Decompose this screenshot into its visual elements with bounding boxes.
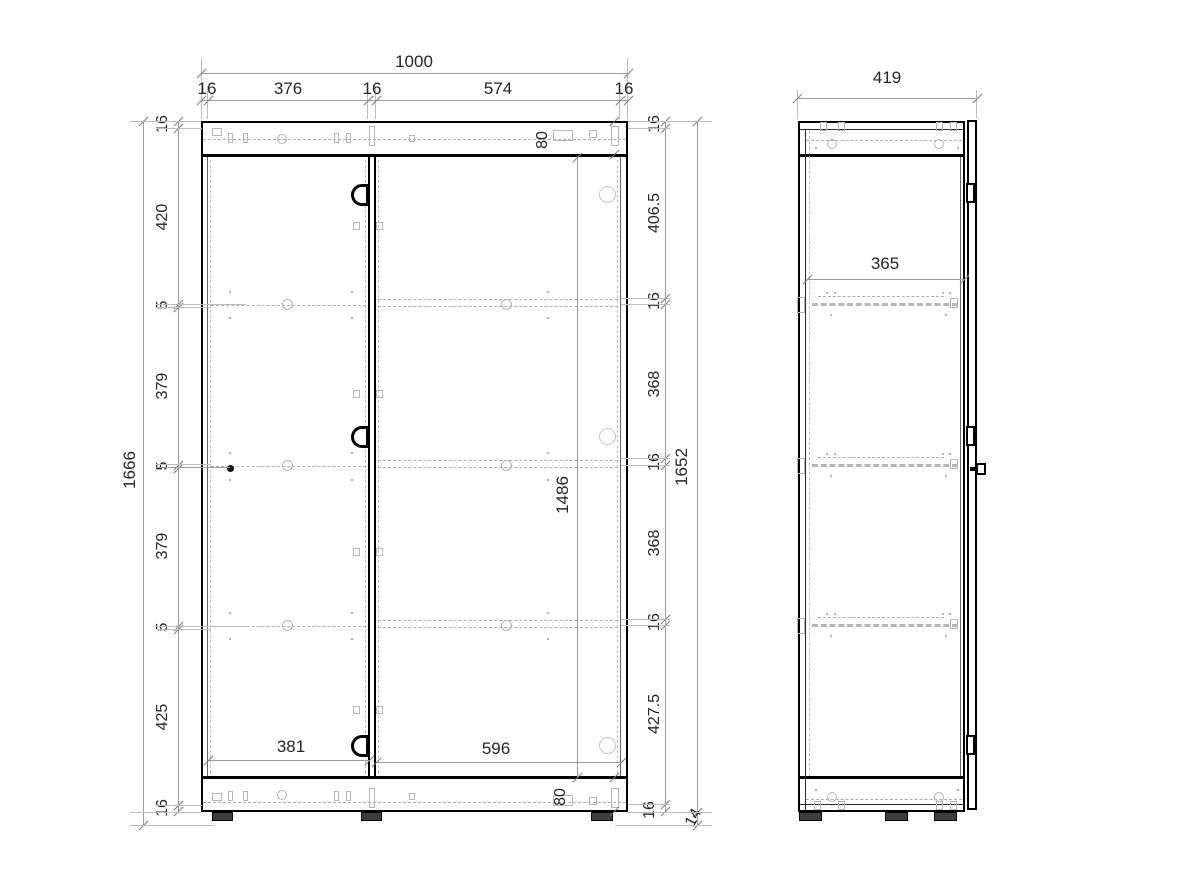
shelf-hidden-line [818, 457, 944, 458]
front-center-divider-left [368, 157, 370, 776]
fitting-symbol [346, 133, 351, 143]
foot-block [799, 812, 822, 821]
dim-front-body-height: 1652 [674, 437, 690, 497]
extension-line [621, 298, 670, 299]
fitting-symbol [376, 222, 383, 230]
dim-right-chain-7: 427.5 [647, 684, 663, 744]
pin-dot [229, 479, 231, 481]
shelf-hidden-line [818, 296, 944, 297]
extension-line [156, 128, 202, 129]
pin-dot [229, 612, 231, 614]
hinge-symbol [351, 735, 369, 757]
door-handle [976, 463, 986, 475]
pin-dot [834, 613, 836, 615]
pin-dot [834, 453, 836, 455]
dimension-line [208, 760, 369, 761]
shelf-section-line [812, 303, 958, 306]
pin-dot [547, 291, 549, 293]
dim-left-chain-1: 420 [155, 195, 171, 239]
fitting-symbol [611, 788, 619, 808]
pin-dot [830, 635, 832, 637]
extension-line [976, 90, 977, 118]
pin-dot [949, 453, 951, 455]
back-clip-symbol [797, 458, 805, 474]
dim-front-seg-2: 16 [352, 81, 392, 97]
cam-symbol [934, 139, 944, 149]
extension-line [628, 121, 712, 122]
fitting-symbol [353, 222, 360, 230]
pin-dot [815, 789, 817, 791]
dim-left-door-width: 381 [261, 739, 321, 755]
hinge-symbol [351, 426, 369, 448]
dim-left-chain-8: 16 [155, 786, 171, 830]
pin-dot [826, 292, 828, 294]
pin-dot [957, 147, 959, 149]
cam-symbol [827, 792, 837, 802]
side-top-rail-bottom [800, 154, 963, 157]
dim-front-seg-4: 16 [604, 81, 644, 97]
cam-symbol [277, 790, 287, 800]
dim-right-chain-0: 16 [647, 102, 663, 146]
dim-left-chain-3: 379 [155, 364, 171, 408]
pin-dot [830, 314, 832, 316]
dim-right-chain-3: 368 [647, 362, 663, 406]
hinge-block [966, 426, 975, 446]
fitting-symbol [376, 390, 383, 398]
pin-dot [949, 292, 951, 294]
dimension-line [376, 762, 621, 763]
dim-left-chain-4: 5 [155, 444, 171, 488]
hinge-block [966, 183, 975, 203]
dim-front-seg-1: 376 [268, 81, 308, 97]
extension-line [628, 812, 712, 813]
side-back-panel-line [805, 130, 806, 810]
shelf-hidden-line [378, 620, 618, 621]
pin-dot [957, 789, 959, 791]
dimension-line [201, 73, 628, 74]
fitting-symbol [838, 801, 845, 810]
pin-dot [351, 479, 353, 481]
extension-line [621, 458, 670, 459]
extension-line [621, 304, 670, 305]
hinge-block [966, 735, 975, 755]
extension-line [130, 121, 201, 122]
shelf-hidden-line [818, 617, 944, 618]
pin-dot [942, 292, 944, 294]
shelf-hidden-line [378, 627, 618, 628]
dim-front-plinth-height: 14 [678, 798, 709, 837]
pin-dot [830, 475, 832, 477]
extension-line [615, 825, 712, 826]
pin-dot [547, 452, 549, 454]
extension-line [156, 805, 202, 806]
dim-left-chain-0: 16 [155, 102, 171, 146]
pin-dot [942, 613, 944, 615]
fitting-symbol [950, 801, 957, 810]
pin-dot [351, 317, 353, 319]
fitting-symbol [212, 793, 222, 801]
shelf-cam-symbol [501, 460, 512, 471]
fitting-symbol [376, 548, 383, 556]
pin-dot [229, 291, 231, 293]
fitting-symbol [346, 791, 351, 801]
pin-dot [229, 317, 231, 319]
cam-symbol [277, 134, 287, 144]
pin-dot [945, 314, 947, 316]
extension-line [130, 812, 201, 813]
pin-dot [229, 638, 231, 640]
shelf-edge-symbol [950, 459, 958, 469]
dim-front-total-width: 1000 [381, 54, 447, 70]
front-right-door-edge [620, 157, 621, 776]
fitting-symbol [409, 135, 415, 142]
shelf-cam-symbol [282, 299, 293, 310]
drawing-canvas: 1000 16 376 16 574 16 16 420 5 379 5 379… [0, 0, 1191, 893]
fitting-symbol [353, 548, 360, 556]
cam-symbol [827, 139, 837, 149]
shelf-edge-symbol [950, 619, 958, 629]
pin-dot [351, 612, 353, 614]
dim-right-door-width: 596 [466, 741, 526, 757]
pin-dot [945, 635, 947, 637]
extension-line [156, 464, 211, 465]
extension-line [156, 307, 211, 308]
fitting-symbol [369, 126, 375, 146]
side-hidden-edge [809, 131, 810, 776]
shelf-section-line [812, 464, 958, 467]
pin-dot [949, 613, 951, 615]
hinge-symbol [351, 184, 369, 206]
fitting-symbol [243, 791, 248, 801]
fitting-symbol [243, 133, 248, 143]
dim-right-door-height: 1486 [555, 465, 571, 525]
dim-left-chain-6: 5 [155, 605, 171, 649]
fitting-symbol [589, 130, 597, 138]
back-clip-symbol [797, 297, 805, 313]
shelf-hidden-line [378, 467, 618, 468]
pin-dot [826, 613, 828, 615]
dim-side-inner-depth: 365 [855, 256, 915, 272]
pin-dot [351, 638, 353, 640]
fitting-symbol [611, 126, 619, 146]
fitting-symbol [814, 801, 821, 810]
dim-front-seg-0: 16 [187, 81, 227, 97]
fitting-symbol [820, 122, 827, 131]
side-front-inner-line [960, 157, 961, 776]
fitting-symbol [936, 801, 943, 810]
shelf-hidden-line [378, 299, 618, 300]
back-clip-symbol [797, 618, 805, 634]
fitting-symbol [589, 797, 597, 805]
dim-bottom-rail-height: 80 [553, 775, 569, 819]
pin-dot [351, 291, 353, 293]
foot-block [885, 812, 908, 821]
extension-line [621, 465, 670, 466]
shelf-hidden-line [378, 460, 618, 461]
dim-right-chain-4: 16 [647, 440, 663, 484]
dim-left-chain-7: 425 [155, 695, 171, 739]
fitting-symbol [353, 390, 360, 398]
foot-block [361, 812, 382, 821]
pin-dot [547, 317, 549, 319]
hinge-cup-symbol [599, 737, 616, 754]
dim-top-rail-height: 80 [535, 118, 551, 162]
pin-dot [826, 453, 828, 455]
shelf-section-line [812, 624, 958, 627]
extension-line [621, 625, 670, 626]
extension-line [156, 467, 230, 468]
front-center-divider-right [374, 157, 376, 776]
extension-line [628, 128, 670, 129]
fitting-symbol [334, 133, 339, 143]
fitting-symbol [838, 122, 845, 131]
fitting-symbol [950, 122, 957, 131]
fitting-symbol [228, 791, 233, 801]
dim-side-total-depth: 419 [857, 70, 917, 86]
foot-block [934, 812, 957, 821]
pin-dot [815, 147, 817, 149]
fitting-symbol [936, 122, 943, 131]
extension-line [797, 90, 798, 119]
extension-line [156, 629, 211, 630]
pin-dot [834, 292, 836, 294]
dimension-line [577, 157, 578, 778]
dim-left-chain-2: 5 [155, 283, 171, 327]
dimension-line [143, 121, 144, 825]
dim-left-chain-5: 379 [155, 524, 171, 568]
dimension-line [697, 121, 698, 825]
dimension-line [201, 100, 628, 101]
dimension-line [797, 98, 977, 99]
hinge-cup-symbol [599, 428, 616, 445]
dimension-line [807, 279, 964, 280]
fitting-symbol [369, 788, 375, 808]
pin-dot [351, 452, 353, 454]
dim-right-chain-5: 368 [647, 521, 663, 565]
fitting-symbol [334, 791, 339, 801]
shelf-cam-symbol [501, 620, 512, 631]
extension-line [156, 626, 246, 627]
front-top-rail-bottom-edge [201, 154, 628, 157]
shelf-cam-symbol [501, 299, 512, 310]
extension-line [628, 804, 670, 805]
pin-dot [547, 479, 549, 481]
pin-dot [229, 452, 231, 454]
dim-front-seg-3: 574 [478, 81, 518, 97]
shelf-edge-symbol [950, 298, 958, 308]
pin-dot [945, 475, 947, 477]
shelf-hidden-line [378, 306, 618, 307]
extension-line [156, 304, 246, 305]
fitting-symbol [409, 793, 415, 800]
dim-right-chain-2: 16 [647, 279, 663, 323]
pin-dot [942, 453, 944, 455]
side-bottom-rail-top [800, 776, 963, 779]
shelf-cam-symbol [282, 620, 293, 631]
extension-line [130, 825, 215, 826]
fitting-symbol [353, 706, 360, 714]
pin-dot [547, 612, 549, 614]
shelf-cam-symbol [282, 460, 293, 471]
dim-front-total-height: 1666 [122, 440, 138, 500]
dim-right-chain-1: 406.5 [647, 183, 663, 243]
fitting-symbol [228, 133, 233, 143]
dim-right-chain-6: 16 [647, 600, 663, 644]
extension-line [621, 619, 670, 620]
pin-dot [547, 638, 549, 640]
fitting-symbol [553, 130, 573, 141]
fitting-symbol [376, 706, 383, 714]
foot-block [212, 812, 233, 821]
fitting-symbol [212, 128, 222, 136]
hinge-cup-symbol [599, 186, 616, 203]
